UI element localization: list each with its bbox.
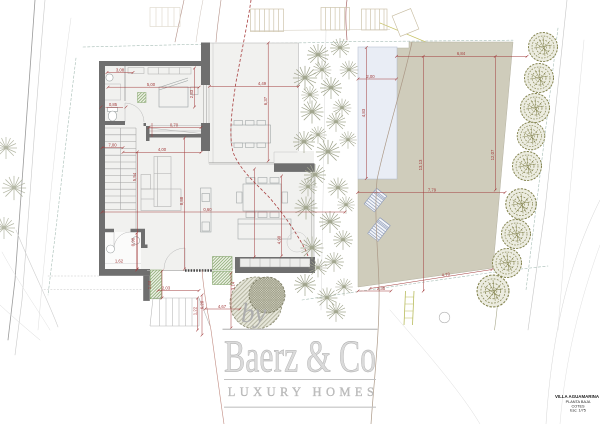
svg-text:7,00: 7,00 bbox=[108, 142, 117, 147]
svg-text:6,28: 6,28 bbox=[200, 300, 205, 309]
svg-text:0,60: 0,60 bbox=[203, 207, 212, 212]
svg-text:8,88: 8,88 bbox=[179, 196, 184, 205]
svg-text:12,07: 12,07 bbox=[490, 149, 495, 160]
svg-text:4,49: 4,49 bbox=[258, 81, 267, 86]
svg-text:2,00: 2,00 bbox=[366, 74, 375, 79]
svg-text:Esc: 1/75: Esc: 1/75 bbox=[570, 409, 586, 413]
svg-text:4,00: 4,00 bbox=[158, 147, 167, 152]
svg-text:0,70: 0,70 bbox=[170, 122, 179, 127]
svg-text:5,00: 5,00 bbox=[147, 82, 156, 87]
svg-text:7,79: 7,79 bbox=[428, 187, 437, 192]
svg-text:6,84: 6,84 bbox=[457, 51, 466, 56]
svg-text:1,44: 1,44 bbox=[147, 280, 152, 289]
svg-text:VILLA AGUAMARINA: VILLA AGUAMARINA bbox=[555, 394, 600, 399]
svg-text:by: by bbox=[241, 298, 267, 328]
svg-text:4,90: 4,90 bbox=[276, 235, 281, 244]
svg-text:5,54: 5,54 bbox=[132, 172, 137, 181]
svg-text:1,22: 1,22 bbox=[192, 306, 197, 315]
svg-text:Baerz & Co: Baerz & Co bbox=[224, 332, 376, 382]
svg-text:3,14: 3,14 bbox=[230, 281, 235, 290]
svg-text:13,13: 13,13 bbox=[418, 159, 423, 170]
svg-text:2,35: 2,35 bbox=[377, 286, 386, 291]
svg-text:1,62: 1,62 bbox=[115, 258, 124, 263]
svg-text:PLANTA BAJA: PLANTA BAJA bbox=[566, 400, 591, 404]
svg-text:2,83: 2,83 bbox=[189, 89, 194, 98]
svg-text:0,90: 0,90 bbox=[131, 237, 136, 246]
svg-text:4,67: 4,67 bbox=[218, 304, 227, 309]
svg-text:LUXURY HOMES: LUXURY HOMES bbox=[228, 385, 379, 399]
svg-text:3,08: 3,08 bbox=[116, 67, 125, 72]
svg-text:0,85: 0,85 bbox=[109, 102, 118, 107]
svg-text:2,03: 2,03 bbox=[162, 285, 171, 290]
svg-text:6,37: 6,37 bbox=[263, 96, 268, 105]
svg-text:4,83: 4,83 bbox=[361, 108, 366, 117]
